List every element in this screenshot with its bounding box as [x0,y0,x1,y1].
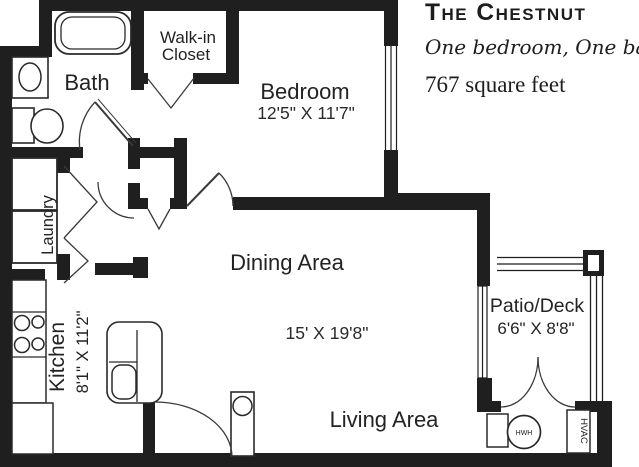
kitchen-label: Kitchen [46,322,69,392]
kitchen-door-arc [155,402,232,457]
living-area-label: Living Area [330,407,440,432]
wall-segment [384,0,398,46]
range-burner [32,316,44,328]
vanity-sink [19,63,41,91]
hvac-label: HVAC [578,418,589,444]
utility-closet-fixtures [487,410,590,453]
kitchen-dimensions: 8'1" X 11'2" [74,310,92,393]
wall-segment [597,401,612,467]
bedroom-window [384,46,398,150]
water-heater-label: HWH [516,430,533,437]
dining-area-label: Dining Area [230,250,345,275]
patio-sliding-door [478,286,487,378]
wall-segment [384,193,490,210]
wall-segment [0,46,12,467]
patio-french-door-arc [538,357,575,407]
wall-segment [39,0,398,11]
bath-door-arc [79,102,95,150]
range-burner [15,338,30,353]
hall-closet-bottom-door [148,209,170,229]
main-dimensions: 15' X 19'8" [286,323,369,343]
patio-deck-label: Patio/Deck [490,295,585,317]
utility-shelf [487,414,508,447]
living-area-column [231,392,254,456]
wall-segment [0,147,83,158]
wall-segment [57,147,70,173]
bathtub-basin [61,17,125,49]
wall-segment [477,210,490,286]
laundry-bifold-door [64,166,97,238]
wall-segment [133,257,148,278]
walk-in-closet-label-line2: Closet [162,45,210,64]
plan-title: The Chestnut [425,0,639,26]
closet-double-door [148,78,194,108]
toilet-bowl [31,109,63,143]
bedroom-dimensions: 12'5" X 11'7" [257,103,355,123]
wall-segment [477,401,501,412]
wall-segment [143,401,155,457]
wall-segment [57,254,70,280]
title-block: The Chestnut One bedroom, One bath. 767 … [425,0,639,98]
bedroom-door-leaf [187,173,219,206]
wall-segment [170,198,187,209]
wall-segment [0,269,45,280]
range-burner [15,316,30,331]
wall-segment [131,73,148,84]
wall-segment [128,198,148,209]
laundry-label: Laundry [39,194,57,254]
patio-deck-dimensions: 6'6" X 8'8" [497,319,574,338]
range-burner [32,338,44,350]
railing-post [583,250,604,276]
wall-segment [384,150,398,195]
plan-area-text: 767 square feet [425,72,639,98]
patio-french-door-arc [501,357,538,407]
plan-subtitle: One bedroom, One bath. [425,35,639,59]
kitchen-sink [112,365,136,399]
wall-segment [0,453,612,467]
column-pipe [233,397,252,416]
kitchen-counter-lower [12,403,53,454]
bath-door-leaf [98,99,136,143]
wall-segment [226,0,239,81]
bedroom-door-arc [219,173,233,206]
bath-door-leaf [95,102,133,146]
bedroom-label: Bedroom [260,79,349,104]
floor-plan-sheet: Bath Walk-in Closet Bedroom 12'5" X 11'7… [0,0,639,467]
wall-segment [233,197,384,210]
bath-label: Bath [64,70,109,95]
